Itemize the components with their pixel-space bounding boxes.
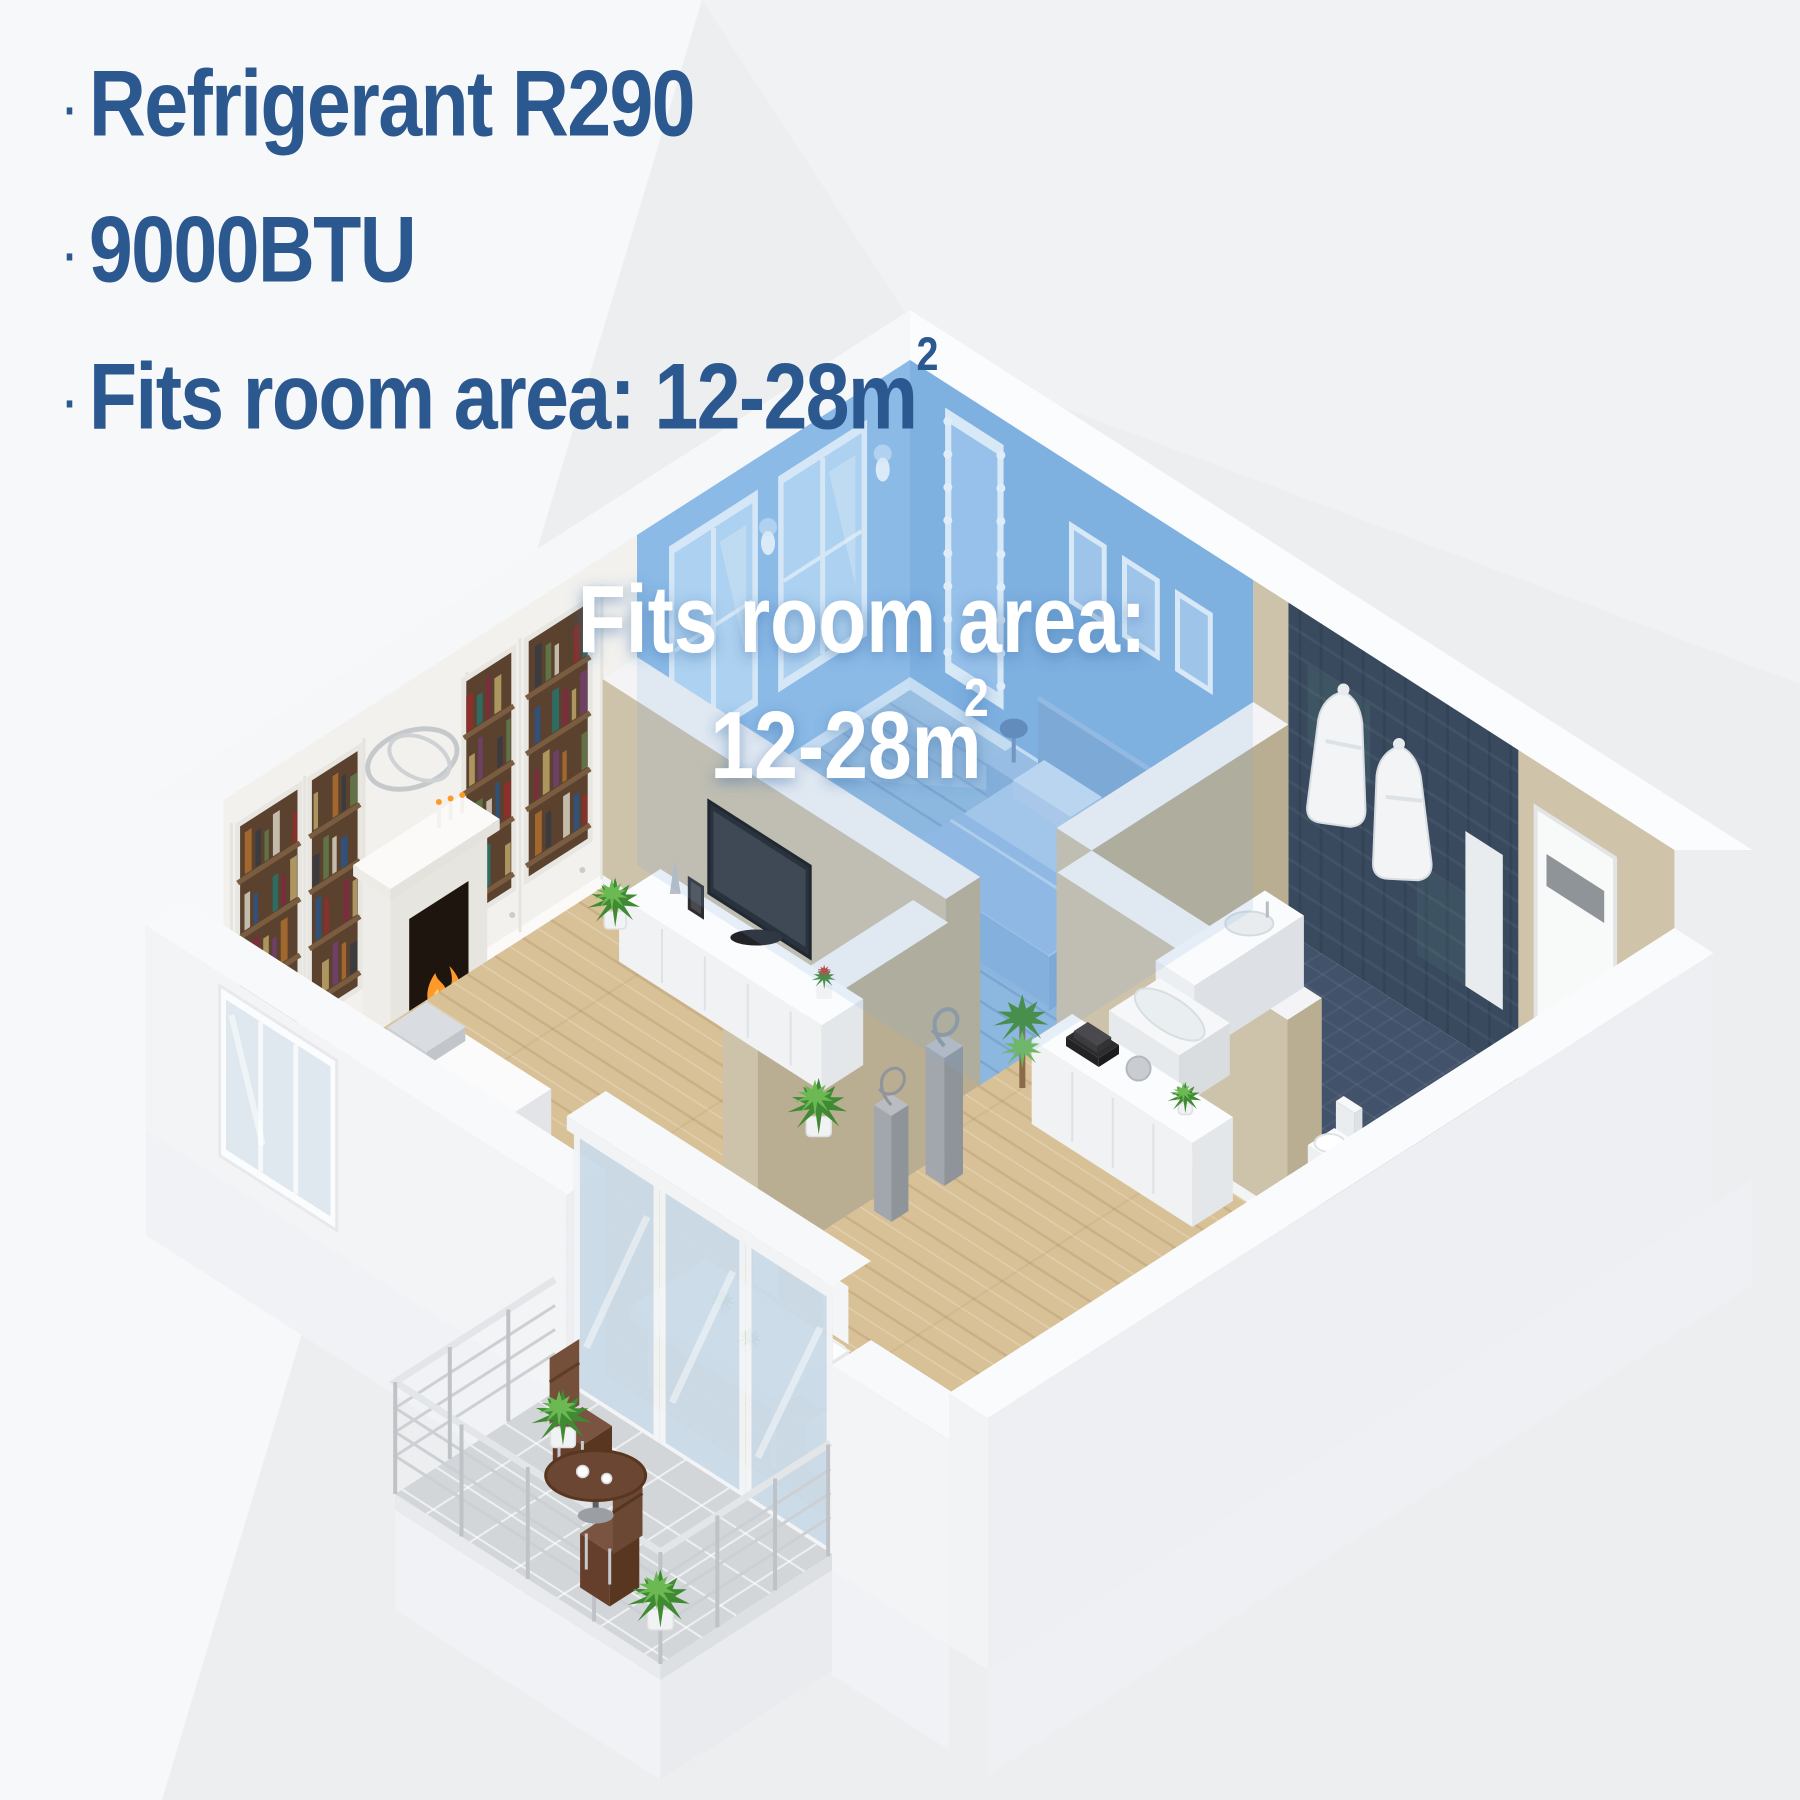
bullet-dot-icon: · [64, 377, 75, 430]
bullet-refrigerant-text: Refrigerant R290 [89, 50, 694, 155]
overlay-line2-sup: 2 [964, 668, 989, 728]
bullet-btu-text: 9000BTU [89, 197, 415, 302]
bullet-btu: ·9000BTU [64, 176, 937, 322]
bullet-room-area-text: Fits room area: 12-28m [89, 343, 917, 448]
overlay-line1: Fits room area: [578, 566, 1147, 673]
bullet-dot-icon: · [64, 230, 75, 283]
product-infographic: ·Refrigerant R290 ·9000BTU ·Fits room ar… [0, 0, 1800, 1800]
bullet-room-area-sup: 2 [916, 327, 936, 380]
bullet-room-area: ·Fits room area: 12-28m2 [64, 323, 937, 469]
bullet-refrigerant: ·Refrigerant R290 [64, 30, 937, 176]
feature-bullets: ·Refrigerant R290 ·9000BTU ·Fits room ar… [64, 30, 937, 469]
apartment-cutaway [146, 310, 1753, 1780]
overlay-line2: 12-28m [710, 692, 981, 799]
bullet-dot-icon: · [64, 84, 75, 137]
